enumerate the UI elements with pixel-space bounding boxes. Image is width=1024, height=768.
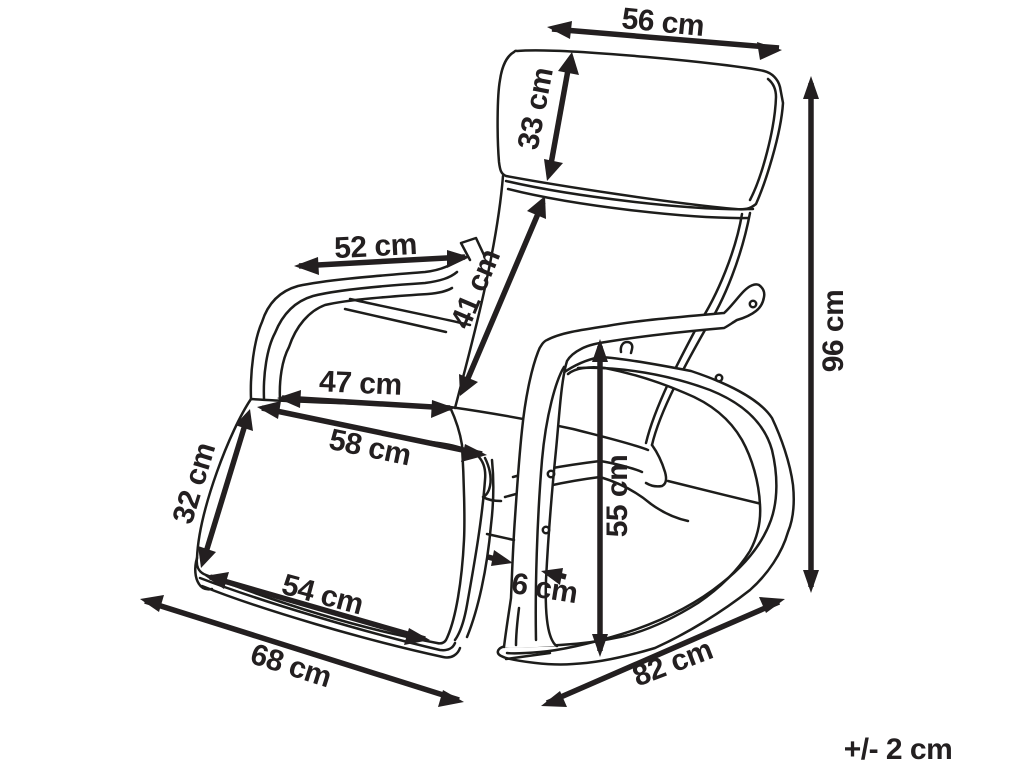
svg-text:+/- 2 cm: +/- 2 cm: [844, 733, 953, 766]
svg-text:52 cm: 52 cm: [333, 228, 417, 265]
svg-text:96 cm: 96 cm: [817, 290, 850, 373]
svg-text:47 cm: 47 cm: [318, 365, 402, 402]
svg-text:55 cm: 55 cm: [601, 455, 634, 538]
